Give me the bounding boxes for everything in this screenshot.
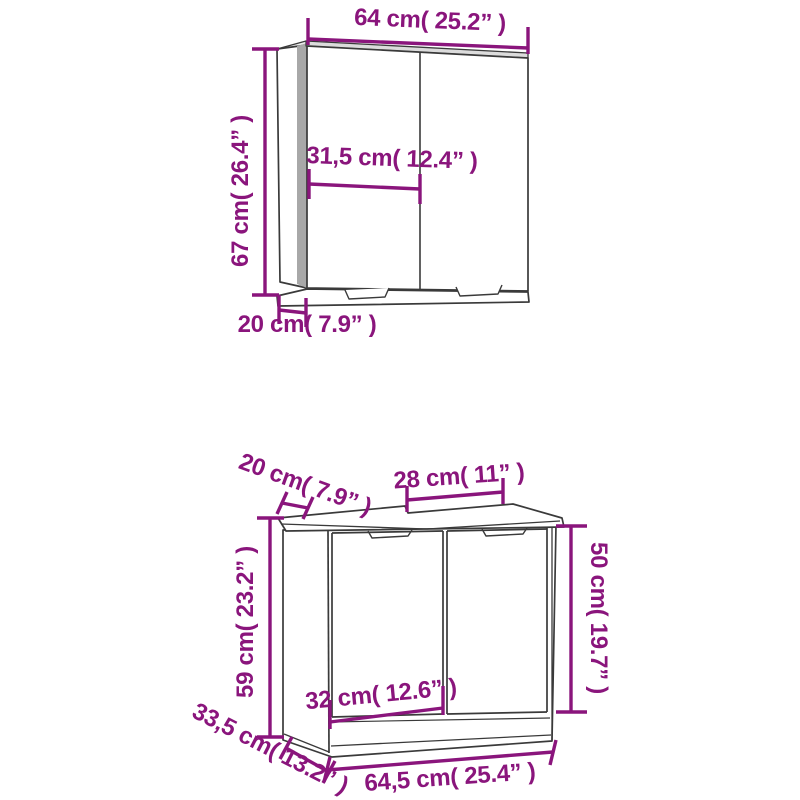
dim-label-mirror-door-width: 31,5 cm( 12.4” ) [306, 142, 478, 176]
sink-cabinet-body [283, 525, 556, 757]
dim-label-sink-door-height: 50 cm( 19.7” ) [584, 542, 612, 694]
sink-top-slab [278, 504, 564, 531]
sink-cabinet-drawing [278, 504, 564, 757]
dim-label-mirror-height: 67 cm( 26.4” ) [227, 115, 255, 267]
mirror-cabinet-drawing [277, 41, 529, 306]
dim-line-sink-top-depth [282, 503, 308, 508]
dim-label-mirror-depth: 20 cm( 7.9” ) [238, 311, 377, 339]
dimension-diagram: 64 cm( 25.2” ) 67 cm( 26.4” ) 31,5 cm( 1… [0, 0, 800, 800]
dim-label-sink-height: 59 cm( 23.2” ) [232, 546, 260, 698]
